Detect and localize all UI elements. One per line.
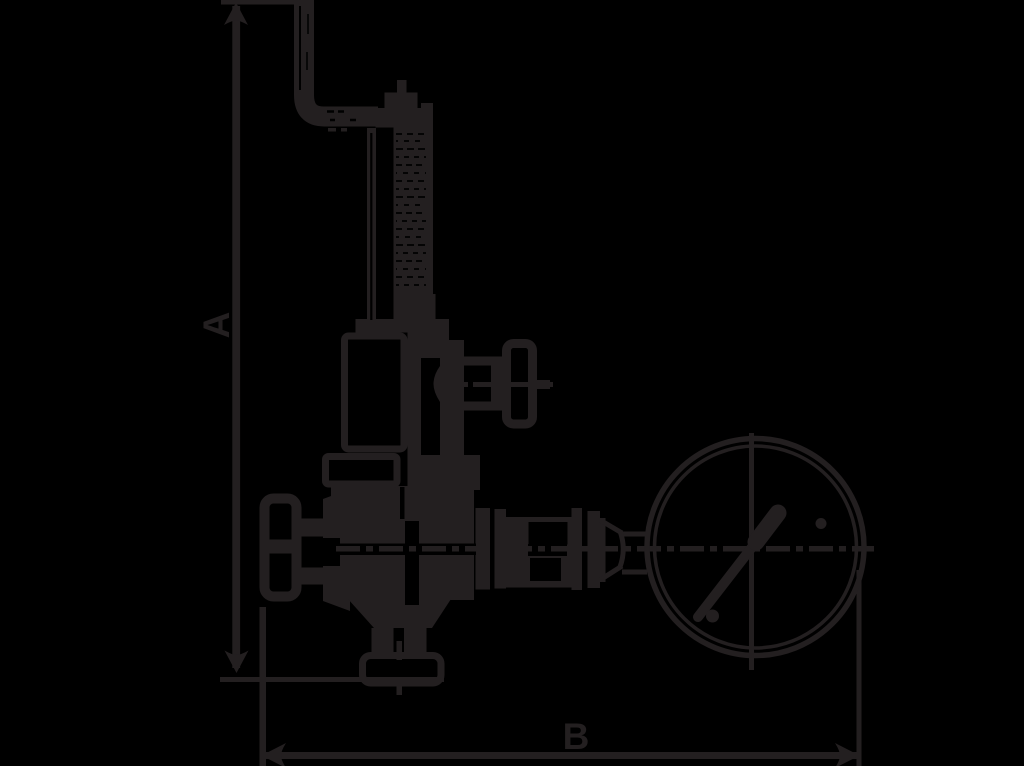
svg-text:B: B	[563, 716, 590, 757]
svg-text:A: A	[196, 312, 237, 339]
